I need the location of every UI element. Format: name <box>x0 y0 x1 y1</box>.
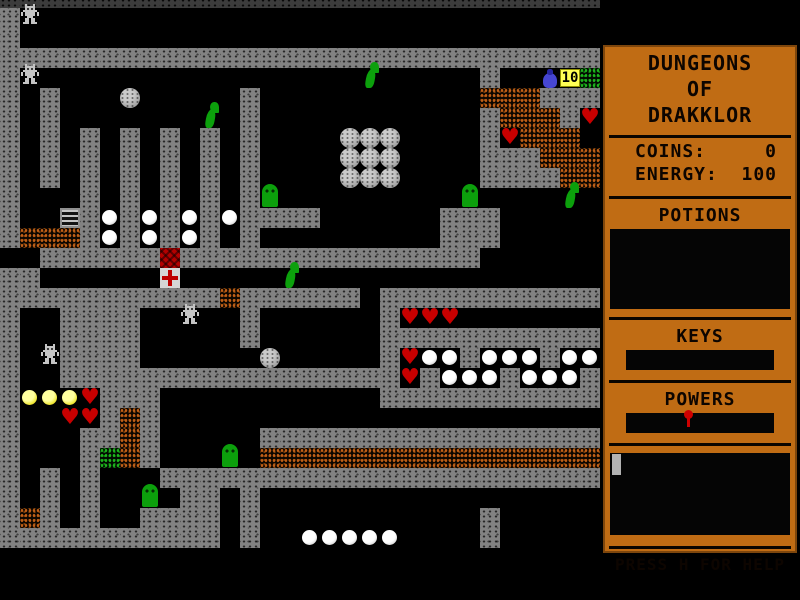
wall-tile <box>500 288 520 308</box>
white-ball-item <box>220 208 240 228</box>
heart-item <box>580 108 600 128</box>
white-ball-item <box>380 528 400 548</box>
wall-tile <box>200 368 220 388</box>
wall-tile <box>300 288 320 308</box>
wall-tile <box>120 528 140 548</box>
white-ball-item <box>340 528 360 548</box>
wall-tile <box>0 328 20 348</box>
wall-tile <box>340 468 360 488</box>
wall-tile <box>100 528 120 548</box>
wall-tile <box>280 48 300 68</box>
wall-tile <box>580 388 600 408</box>
dirt-rubble-tile <box>480 88 500 108</box>
wall-tile <box>0 168 20 188</box>
wall-tile <box>460 208 480 228</box>
heart-item <box>440 308 460 328</box>
wall-tile <box>560 288 580 308</box>
wall-tile <box>380 308 400 328</box>
wall-tile <box>100 248 120 268</box>
dark-wall-tile <box>440 0 460 8</box>
wall-tile <box>240 468 260 488</box>
wall-tile <box>0 528 20 548</box>
wall-tile <box>120 308 140 328</box>
wall-tile <box>320 248 340 268</box>
wall-tile <box>320 468 340 488</box>
wall-tile <box>160 468 180 488</box>
dirt-rubble-tile <box>560 148 580 168</box>
wall-tile <box>280 468 300 488</box>
wall-tile <box>120 248 140 268</box>
boulder <box>120 88 140 108</box>
dirt-rubble-tile <box>60 228 80 248</box>
wall-tile <box>580 428 600 448</box>
divider <box>609 443 791 446</box>
wall-tile <box>560 468 580 488</box>
wall-tile <box>80 428 100 448</box>
wall-tile <box>60 248 80 268</box>
energy-stat-row: ENERGY: 100 <box>605 166 795 184</box>
dirt-rubble-tile <box>580 168 600 188</box>
wall-tile <box>300 468 320 488</box>
dark-wall-tile <box>520 0 540 8</box>
wall-tile <box>40 528 60 548</box>
wall-tile <box>520 328 540 348</box>
wall-tile <box>520 288 540 308</box>
golem-sprite <box>40 348 60 368</box>
wall-tile <box>500 48 520 68</box>
dark-wall-tile <box>500 0 520 8</box>
wall-tile <box>480 168 500 188</box>
wall-tile <box>460 328 480 348</box>
dirt-rubble-tile <box>260 448 280 468</box>
wall-tile <box>300 48 320 68</box>
wall-tile <box>200 168 220 188</box>
wall-tile <box>440 388 460 408</box>
wall-tile <box>240 208 260 228</box>
wall-tile <box>60 48 80 68</box>
dark-wall-tile <box>220 0 240 8</box>
wall-tile <box>240 508 260 528</box>
wall-tile <box>200 288 220 308</box>
wall-tile <box>60 308 80 328</box>
wall-tile <box>300 368 320 388</box>
dark-wall-tile <box>280 0 300 8</box>
wall-tile <box>40 168 60 188</box>
dirt-rubble-tile <box>520 128 540 148</box>
dark-wall-tile <box>100 0 120 8</box>
wall-tile <box>540 468 560 488</box>
wall-tile <box>460 468 480 488</box>
wall-tile <box>0 308 20 328</box>
wall-tile <box>0 488 20 508</box>
wall-tile <box>320 288 340 308</box>
green-rubble-tile <box>580 68 600 88</box>
wall-tile <box>280 208 300 228</box>
wall-tile <box>40 288 60 308</box>
dirt-rubble-tile <box>20 228 40 248</box>
white-ball-item <box>520 348 540 368</box>
wall-tile <box>580 48 600 68</box>
heart-item <box>400 308 420 328</box>
white-ball-item <box>560 368 580 388</box>
dark-wall-tile <box>20 0 40 8</box>
wall-tile <box>380 348 400 368</box>
golem-sprite <box>20 8 40 28</box>
wall-tile <box>60 288 80 308</box>
wall-tile <box>200 128 220 148</box>
slime-monster <box>140 488 160 508</box>
wall-tile <box>40 148 60 168</box>
wall-tile <box>520 48 540 68</box>
wall-tile <box>80 328 100 348</box>
potion-item <box>540 68 560 88</box>
wall-tile <box>520 468 540 488</box>
divider <box>609 135 791 138</box>
dark-wall-tile <box>300 0 320 8</box>
golem-sprite <box>20 68 40 88</box>
wall-tile <box>380 428 400 448</box>
wall-tile <box>380 368 400 388</box>
wall-tile <box>540 168 560 188</box>
wall-tile <box>500 328 520 348</box>
wall-tile <box>220 468 240 488</box>
wall-tile <box>0 268 20 288</box>
help-hint: PRESS H FOR HELP <box>605 556 795 574</box>
wall-tile <box>380 288 400 308</box>
wall-tile <box>340 368 360 388</box>
wall-tile <box>480 68 500 88</box>
wall-tile <box>0 448 20 468</box>
wall-tile <box>180 248 200 268</box>
dirt-rubble-tile <box>360 448 380 468</box>
wall-tile <box>500 468 520 488</box>
white-ball-item <box>140 228 160 248</box>
wall-tile <box>560 88 580 108</box>
wall-tile <box>540 328 560 348</box>
energy-value: 100 <box>741 166 777 184</box>
dark-wall-tile <box>160 0 180 8</box>
wall-tile <box>200 508 220 528</box>
wall-tile <box>500 428 520 448</box>
worm-monster <box>560 188 580 208</box>
wall-tile <box>40 48 60 68</box>
wall-tile <box>80 128 100 148</box>
dark-wall-tile <box>180 0 200 8</box>
white-ball-item <box>140 208 160 228</box>
wall-tile <box>500 148 520 168</box>
heart-item <box>500 128 520 148</box>
dark-wall-tile <box>540 0 560 8</box>
wall-tile <box>120 128 140 148</box>
slime-monster <box>260 188 280 208</box>
wall-tile <box>580 468 600 488</box>
wall-tile <box>340 428 360 448</box>
wall-tile <box>240 488 260 508</box>
wall-tile <box>540 48 560 68</box>
wall-tile <box>480 468 500 488</box>
wall-tile <box>340 288 360 308</box>
dark-wall-tile <box>0 0 20 8</box>
dirt-rubble-tile <box>520 448 540 468</box>
wall-tile <box>460 388 480 408</box>
dirt-rubble-tile <box>300 448 320 468</box>
divider <box>609 317 791 320</box>
boulder <box>380 168 400 188</box>
coins-label: COINS: <box>635 143 706 161</box>
wall-tile <box>240 88 260 108</box>
wall-tile <box>240 328 260 348</box>
wall-tile <box>480 508 500 528</box>
wall-tile <box>440 208 460 228</box>
boulder <box>340 168 360 188</box>
wall-tile <box>480 228 500 248</box>
wall-tile <box>300 428 320 448</box>
wall-tile <box>0 288 20 308</box>
dark-wall-tile <box>380 0 400 8</box>
wall-tile <box>100 348 120 368</box>
wall-tile <box>440 328 460 348</box>
wall-tile <box>40 88 60 108</box>
wall-tile <box>540 348 560 368</box>
wall-tile <box>200 468 220 488</box>
wall-tile <box>0 428 20 448</box>
dirt-rubble-tile <box>520 108 540 128</box>
energy-label: ENERGY: <box>635 166 718 184</box>
worm-monster <box>200 108 220 128</box>
wall-tile <box>0 108 20 128</box>
wall-tile <box>140 388 160 408</box>
wall-tile <box>280 368 300 388</box>
wall-tile <box>480 428 500 448</box>
golem-sprite <box>180 308 200 328</box>
heart-item <box>420 308 440 328</box>
dirt-rubble-tile <box>120 408 140 428</box>
wall-tile <box>560 328 580 348</box>
dirt-rubble-tile <box>540 128 560 148</box>
red-brick-tile <box>160 248 180 268</box>
wall-tile <box>40 508 60 528</box>
dirt-rubble-tile <box>480 448 500 468</box>
wall-tile <box>40 488 60 508</box>
wall-tile <box>360 468 380 488</box>
wall-tile <box>140 448 160 468</box>
wall-tile <box>480 48 500 68</box>
wall-tile <box>180 488 200 508</box>
white-ball-item <box>560 348 580 368</box>
white-ball-item <box>360 528 380 548</box>
wall-tile <box>20 48 40 68</box>
wall-tile <box>480 328 500 348</box>
wall-tile <box>420 388 440 408</box>
wall-tile <box>220 248 240 268</box>
wall-tile <box>0 68 20 88</box>
wall-tile <box>360 248 380 268</box>
powers-heading: POWERS <box>605 391 795 409</box>
wall-tile <box>380 468 400 488</box>
wall-tile <box>240 228 260 248</box>
wall-tile <box>260 368 280 388</box>
dark-wall-tile <box>200 0 220 8</box>
wall-tile <box>280 428 300 448</box>
wall-tile <box>100 328 120 348</box>
dark-wall-tile <box>320 0 340 8</box>
wall-tile <box>100 288 120 308</box>
potions-heading: POTIONS <box>605 207 795 225</box>
wall-tile <box>80 288 100 308</box>
dark-wall-tile <box>120 0 140 8</box>
wall-tile <box>160 48 180 68</box>
game-map-viewport[interactable]: 10 <box>0 0 600 553</box>
wall-tile <box>380 48 400 68</box>
wall-tile <box>0 148 20 168</box>
wall-tile <box>560 428 580 448</box>
power-pin-icon <box>684 410 693 419</box>
wall-tile <box>80 508 100 528</box>
game-title-line-2: OF <box>605 79 795 99</box>
gold-ball-item <box>40 388 60 408</box>
wall-tile <box>100 308 120 328</box>
boulder <box>380 128 400 148</box>
wall-tile <box>80 448 100 468</box>
slime-monster <box>460 188 480 208</box>
dirt-rubble-tile <box>280 448 300 468</box>
cross-tile <box>160 268 180 288</box>
wall-tile <box>540 88 560 108</box>
wall-tile <box>80 148 100 168</box>
wall-tile <box>200 188 220 208</box>
wall-tile <box>540 428 560 448</box>
wall-tile <box>40 128 60 148</box>
wall-tile <box>120 148 140 168</box>
wall-tile <box>20 288 40 308</box>
dirt-rubble-tile <box>500 448 520 468</box>
dark-wall-tile <box>580 0 600 8</box>
dirt-rubble-tile <box>560 448 580 468</box>
white-ball-item <box>500 348 520 368</box>
dirt-rubble-tile <box>580 148 600 168</box>
divider <box>609 546 791 549</box>
wall-tile <box>160 168 180 188</box>
white-ball-item <box>100 228 120 248</box>
wall-tile <box>120 168 140 188</box>
wall-tile <box>420 248 440 268</box>
wall-tile <box>120 208 140 228</box>
white-ball-item <box>440 368 460 388</box>
wall-tile <box>560 48 580 68</box>
coin-counter-tag: 10 <box>560 69 580 87</box>
wall-tile <box>560 108 580 128</box>
slime-monster <box>220 448 240 468</box>
game-title-line-1: DUNGEONS <box>605 53 795 73</box>
dirt-rubble-tile <box>20 508 40 528</box>
dirt-rubble-tile <box>500 88 520 108</box>
wall-tile <box>540 288 560 308</box>
wall-tile <box>220 48 240 68</box>
wall-tile <box>420 428 440 448</box>
white-ball-item <box>180 228 200 248</box>
wall-tile <box>520 428 540 448</box>
hud-sidebar: DUNGEONS OF DRAKKLOR COINS: 0 ENERGY: 10… <box>603 45 797 553</box>
worm-monster <box>360 68 380 88</box>
dirt-rubble-tile <box>540 108 560 128</box>
wall-tile <box>500 368 520 388</box>
wall-tile <box>100 48 120 68</box>
dark-wall-tile <box>460 0 480 8</box>
wall-tile <box>240 528 260 548</box>
coins-stat-row: COINS: 0 <box>605 143 795 161</box>
keys-heading: KEYS <box>605 328 795 346</box>
wall-tile <box>100 428 120 448</box>
wall-tile <box>460 348 480 368</box>
wall-tile <box>160 288 180 308</box>
wall-tile <box>380 328 400 348</box>
wall-tile <box>120 288 140 308</box>
wall-tile <box>0 388 20 408</box>
wall-tile <box>120 48 140 68</box>
wall-tile <box>0 48 20 68</box>
dirt-rubble-tile <box>540 148 560 168</box>
dirt-rubble-tile <box>580 448 600 468</box>
wall-tile <box>480 388 500 408</box>
wall-tile <box>480 108 500 128</box>
wall-tile <box>140 248 160 268</box>
wall-tile <box>120 388 140 408</box>
wall-tile <box>0 128 20 148</box>
wall-tile <box>220 368 240 388</box>
wall-tile <box>460 288 480 308</box>
message-cursor <box>612 454 621 475</box>
wall-tile <box>20 528 40 548</box>
dirt-rubble-tile <box>380 448 400 468</box>
wall-tile <box>440 468 460 488</box>
potions-inventory-box <box>610 229 790 309</box>
wall-tile <box>260 288 280 308</box>
wall-tile <box>420 468 440 488</box>
wall-tile <box>480 288 500 308</box>
wall-tile <box>0 468 20 488</box>
wall-tile <box>260 48 280 68</box>
wall-tile <box>180 288 200 308</box>
wall-tile <box>180 468 200 488</box>
divider <box>609 196 791 199</box>
wall-tile <box>480 148 500 168</box>
wall-tile <box>140 288 160 308</box>
wall-tile <box>100 408 120 428</box>
boulder <box>360 168 380 188</box>
wall-tile <box>260 208 280 228</box>
wall-tile <box>80 208 100 228</box>
wall-tile <box>160 228 180 248</box>
wall-tile <box>40 108 60 128</box>
wall-tile <box>240 188 260 208</box>
wall-tile <box>60 328 80 348</box>
wall-tile <box>580 288 600 308</box>
wall-tile <box>200 488 220 508</box>
wall-tile <box>240 48 260 68</box>
wall-tile <box>240 108 260 128</box>
wall-tile <box>0 188 20 208</box>
dirt-rubble-tile <box>460 448 480 468</box>
dark-wall-tile <box>340 0 360 8</box>
wall-tile <box>240 128 260 148</box>
wall-tile <box>0 368 20 388</box>
gold-ball-item <box>20 388 40 408</box>
wall-tile <box>0 208 20 228</box>
wall-tile <box>120 228 140 248</box>
wall-tile <box>140 48 160 68</box>
wall-tile <box>180 48 200 68</box>
wall-tile <box>240 288 260 308</box>
